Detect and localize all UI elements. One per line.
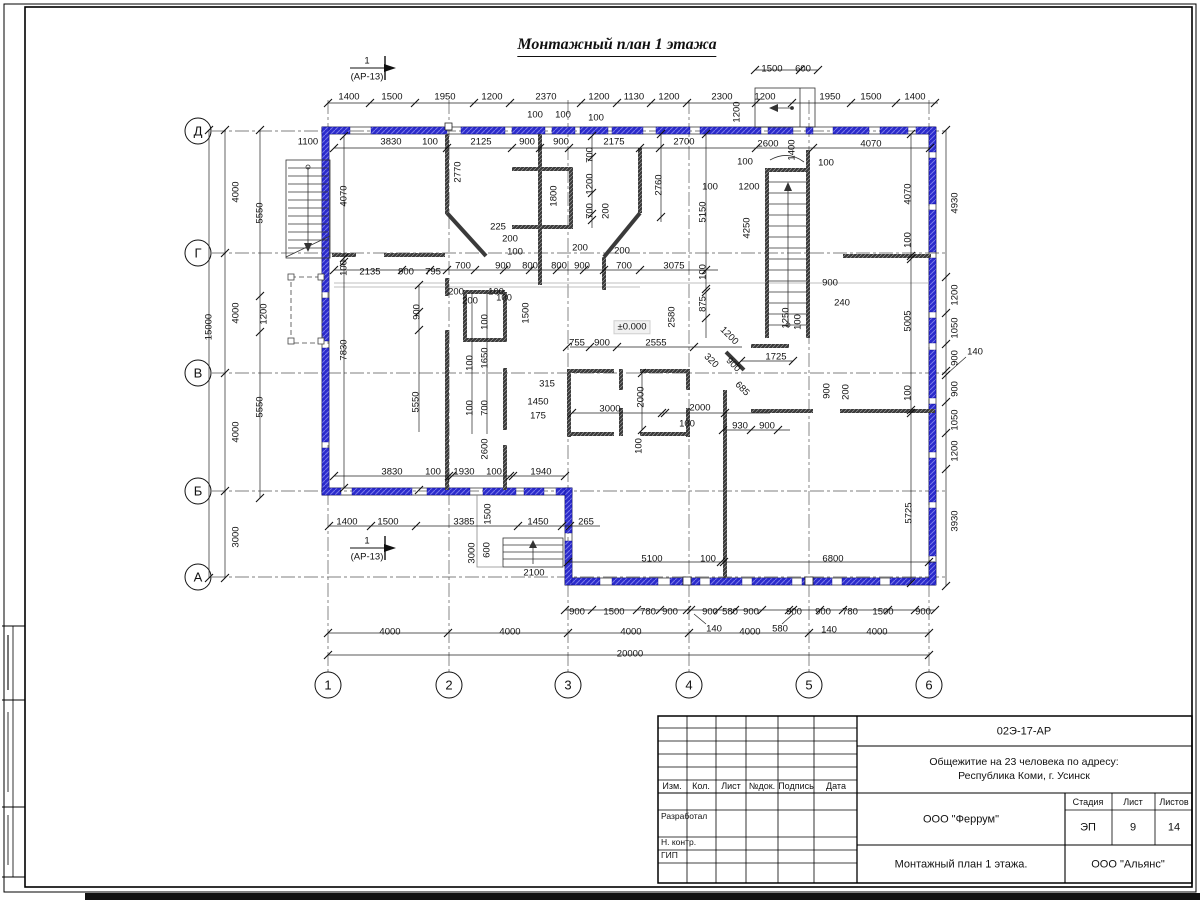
tb-column-header: Подпись <box>778 781 814 791</box>
axis-bubble-label: Г <box>194 247 201 260</box>
dim-label: 5725 <box>904 502 914 523</box>
dim-label: 2700 <box>673 137 694 147</box>
dim-label: 1200 <box>950 440 960 461</box>
dim-label: 700 <box>585 203 595 219</box>
dim-label: 4930 <box>950 192 960 213</box>
dim-label: 930 <box>732 421 748 431</box>
dim-label: 20000 <box>617 649 643 659</box>
corridor-lines <box>334 283 928 287</box>
dim-label: 175 <box>530 411 546 421</box>
dim-label: 5100 <box>641 554 662 564</box>
dim-label: 7830 <box>339 339 349 360</box>
dim-label: 900 <box>822 383 832 399</box>
dim-label: 1200 <box>481 92 502 102</box>
dim-label: 1500 <box>761 64 782 74</box>
tb-column-header: Кол. <box>692 781 710 791</box>
dim-label: 100 <box>679 419 695 429</box>
sheets-value: 14 <box>1168 822 1180 835</box>
axis-bubble-label: 6 <box>925 679 932 692</box>
dim-label: 900 <box>950 350 960 366</box>
dim-label: 3000 <box>467 542 477 563</box>
dim-label: 1400 <box>338 92 359 102</box>
dim-label: 1950 <box>819 92 840 102</box>
dim-label: 1250 <box>781 307 791 328</box>
axis-bubble-label: А <box>194 571 203 584</box>
dim-label: 100 <box>698 264 708 280</box>
dim-label: 1200 <box>950 284 960 305</box>
section-mark-num: 1 <box>364 536 369 546</box>
dim-label: 1940 <box>530 467 551 477</box>
dim-label: 1400 <box>787 139 797 160</box>
dim-label: 100 <box>496 293 512 303</box>
dim-label: 1800 <box>549 185 559 206</box>
dim-label: 100 <box>507 247 523 257</box>
dim-label: 1500 <box>872 607 893 617</box>
dim-label: 1130 <box>624 92 644 102</box>
tb-column-header: Изм. <box>662 781 681 791</box>
dim-label: 795 <box>425 267 441 277</box>
dim-label: 4000 <box>231 302 241 323</box>
dim-label: 4000 <box>866 627 887 637</box>
doc-number: 02Э-17-АР <box>997 726 1051 739</box>
dim-label: 100 <box>555 110 571 120</box>
sheet-value: 9 <box>1130 822 1136 835</box>
dim-label: 3830 <box>380 137 401 147</box>
project-line2: Республика Коми, г. Усинск <box>958 770 1090 782</box>
dim-label: 200 <box>502 234 518 244</box>
dim-label: 800 <box>522 261 538 271</box>
dim-label: 100 <box>702 182 718 192</box>
dim-label: 800 <box>551 261 567 271</box>
dim-label: 1500 <box>483 503 493 524</box>
dim-label: 100 <box>527 110 543 120</box>
dim-label: 100 <box>422 137 438 147</box>
dim-label: 1100 <box>298 137 318 147</box>
dim-label: 900 <box>815 607 831 617</box>
dim-label: 1050 <box>950 317 960 338</box>
dim-label: 900 <box>702 607 718 617</box>
dim-label: 1500 <box>377 517 398 527</box>
dim-label: 700 <box>585 147 595 163</box>
axis-bubble-label: Д <box>194 125 203 138</box>
dim-label: 100 <box>903 232 913 248</box>
dim-label: 4070 <box>339 185 349 206</box>
axis-bubble-label: Б <box>194 485 203 498</box>
dim-label: 200 <box>614 246 630 256</box>
dim-label: 5550 <box>255 396 265 417</box>
dim-label: 15000 <box>204 314 214 340</box>
dim-label: 225 <box>490 222 506 232</box>
dim-label: 1400 <box>904 92 925 102</box>
dim-label: 580 <box>722 607 738 617</box>
dim-label: 1200 <box>732 101 742 122</box>
dim-label: 900 <box>915 607 931 617</box>
dim-label: 900 <box>495 261 511 271</box>
dim-label: 200 <box>572 243 588 253</box>
dim-label: 100 <box>903 385 913 401</box>
dim-label: 780 <box>640 607 656 617</box>
dim-label: 1200 <box>259 303 269 324</box>
stair-right <box>769 155 806 327</box>
dim-label: 6800 <box>822 554 843 564</box>
dim-label: 4000 <box>231 181 241 202</box>
dim-label: 100 <box>737 157 753 167</box>
dim-label: 900 <box>822 278 838 288</box>
dim-label: 100 <box>465 355 475 371</box>
dim-label: 2770 <box>453 161 463 182</box>
dim-label: 200 <box>601 203 611 219</box>
dim-label: 2370 <box>535 92 556 102</box>
interior-walls <box>332 134 935 578</box>
dim-label: 1400 <box>336 517 357 527</box>
dim-label: 4000 <box>499 627 520 637</box>
company-name: ООО "Альянс" <box>1091 859 1165 872</box>
dim-label: 240 <box>834 298 850 308</box>
tb-role-label: ГИП <box>661 851 678 861</box>
dim-label: 140 <box>967 347 983 357</box>
section-mark-ref: (АР-13) <box>351 552 384 562</box>
axis-bubble-label: 4 <box>685 679 692 692</box>
sheet-label: Лист <box>1123 797 1143 807</box>
dim-label: 600 <box>795 64 811 74</box>
dim-label: 1200 <box>754 92 775 102</box>
tb-column-header: №док. <box>749 781 775 791</box>
drawing-name: Монтажный план 1 этажа. <box>895 859 1028 872</box>
dim-label: 4000 <box>379 627 400 637</box>
dim-label: 5150 <box>698 201 708 222</box>
dim-label: 2555 <box>645 338 666 348</box>
dim-label: 900 <box>759 421 775 431</box>
dim-label: 2135 <box>359 267 380 277</box>
dim-label: 4000 <box>231 421 241 442</box>
dim-label: 900 <box>950 381 960 397</box>
dim-label: 900 <box>569 607 585 617</box>
dim-label: 700 <box>616 261 632 271</box>
axis-bubble-label: В <box>194 367 203 380</box>
tb-role-label: Н. контр. <box>661 838 696 848</box>
dim-label: 100 <box>588 113 604 123</box>
dim-label: 3000 <box>599 404 620 414</box>
dim-label: 100 <box>793 314 803 330</box>
dim-label: 140 <box>821 625 837 635</box>
dim-label: 100 <box>818 158 834 168</box>
tb-role-label: Разработал <box>661 812 707 822</box>
dim-label: 2125 <box>470 137 491 147</box>
dim-label: 600 <box>482 542 492 558</box>
dim-label: 2000 <box>636 386 646 407</box>
dim-label: 100 <box>634 438 644 454</box>
dim-label: 3385 <box>453 517 474 527</box>
sheets-label: Листов <box>1159 797 1188 807</box>
tb-column-header: Лист <box>721 781 741 791</box>
drawing-title: Монтажный план 1 этажа <box>517 36 716 57</box>
dim-label: 3930 <box>950 510 960 531</box>
dim-label: 5550 <box>255 202 265 223</box>
axis-bubble-label: 5 <box>805 679 812 692</box>
section-mark-num: 1 <box>364 56 369 66</box>
dim-label: 2600 <box>757 139 778 149</box>
dim-label: 1200 <box>585 173 595 194</box>
dim-label: 3830 <box>381 467 402 477</box>
dim-label: 315 <box>539 379 555 389</box>
dim-label: 265 <box>578 517 594 527</box>
dim-label: 1450 <box>527 397 548 407</box>
dim-label: 200 <box>462 296 478 306</box>
project-line1: Общежитие на 23 человека по адресу: <box>929 756 1118 768</box>
section-mark-ref: (АР-13) <box>351 72 384 82</box>
dim-label: 1930 <box>453 467 474 477</box>
dim-label: 900 <box>398 267 414 277</box>
dim-label: 700 <box>480 400 490 416</box>
dim-label: 1050 <box>950 409 960 430</box>
dim-label: 900 <box>574 261 590 271</box>
dim-label: 4000 <box>620 627 641 637</box>
dim-label: 1950 <box>434 92 455 102</box>
dim-label: 5550 <box>411 391 421 412</box>
axis-bubble-label: 2 <box>445 679 452 692</box>
dim-label: 1500 <box>381 92 402 102</box>
dim-label: 900 <box>743 607 759 617</box>
dim-label: 900 <box>412 304 422 320</box>
dim-label: 4250 <box>742 217 752 238</box>
axis-bubble-label: 1 <box>324 679 331 692</box>
stage-label: Стадия <box>1073 797 1104 807</box>
dim-label: 755 <box>569 338 585 348</box>
dim-label: 100 <box>339 260 349 276</box>
dim-label: 900 <box>786 607 802 617</box>
wall-vent-squares <box>445 123 813 585</box>
dim-label: 900 <box>519 137 535 147</box>
dim-label: 100 <box>486 467 502 477</box>
stage-value: ЭП <box>1080 822 1096 835</box>
drawing-sheet: Монтажный план 1 этажа 14001500195012002… <box>0 0 1200 900</box>
dimension-ticks <box>205 66 950 659</box>
dim-label: 100 <box>425 467 441 477</box>
level-mark: ±0.000 <box>614 320 651 334</box>
dim-label: 100 <box>480 314 490 330</box>
dim-label: 900 <box>553 137 569 147</box>
dim-label: 1200 <box>588 92 609 102</box>
dim-label: 100 <box>700 554 716 564</box>
dim-label: 900 <box>662 607 678 617</box>
dim-label: 700 <box>455 261 471 271</box>
dim-label: 1200 <box>658 92 679 102</box>
dim-label: 780 <box>842 607 858 617</box>
dim-label: 1450 <box>527 517 548 527</box>
axis-bubble-label: 3 <box>564 679 571 692</box>
dim-label: 1500 <box>521 302 531 323</box>
dim-label: 100 <box>465 400 475 416</box>
dim-label: 4000 <box>739 627 760 637</box>
dim-label: 2000 <box>689 403 710 413</box>
dim-label: 900 <box>594 338 610 348</box>
dim-label: 2760 <box>654 174 664 195</box>
dim-label: 1650 <box>480 347 490 368</box>
dim-label: 200 <box>841 384 851 400</box>
dim-label: 4070 <box>860 139 881 149</box>
dim-label: 2100 <box>523 568 544 578</box>
dim-label: 3075 <box>663 261 684 271</box>
dim-label: 580 <box>772 624 788 634</box>
dim-label: 1500 <box>860 92 881 102</box>
tb-column-header: Дата <box>826 781 846 791</box>
dim-label: 4070 <box>903 183 913 204</box>
dim-label: 5005 <box>903 310 913 331</box>
dim-label: 2580 <box>667 306 677 327</box>
dim-label: 2175 <box>603 137 624 147</box>
dim-label: 3000 <box>231 526 241 547</box>
dim-label: 1725 <box>765 352 786 362</box>
org-name: ООО "Феррум" <box>923 814 999 827</box>
exterior-walls <box>322 127 936 585</box>
dim-label: 1200 <box>738 182 759 192</box>
dim-label: 140 <box>706 624 722 634</box>
porch-left-dashed <box>288 274 324 344</box>
dim-label: 1500 <box>603 607 624 617</box>
dim-label: 875 <box>698 296 708 312</box>
dim-label: 2300 <box>711 92 732 102</box>
dim-label: 2600 <box>480 438 490 459</box>
